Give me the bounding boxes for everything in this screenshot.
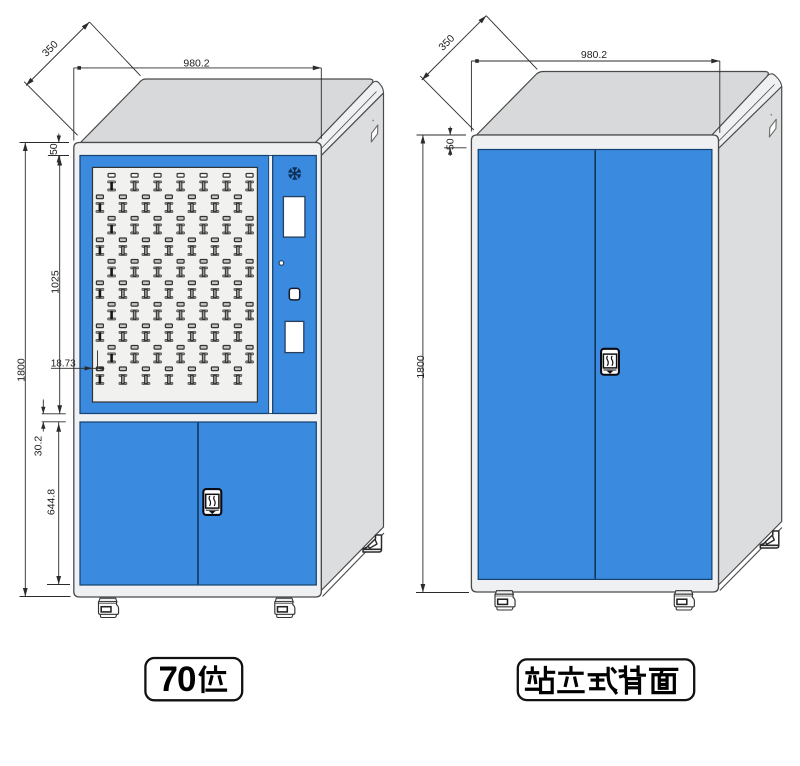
svg-text:70: 70 xyxy=(159,660,196,699)
svg-text:1800: 1800 xyxy=(16,358,28,382)
svg-text:18.73: 18.73 xyxy=(51,358,76,369)
svg-text:644.8: 644.8 xyxy=(46,489,58,515)
svg-text:50: 50 xyxy=(48,143,60,155)
svg-text:50: 50 xyxy=(444,138,456,150)
svg-text:1800: 1800 xyxy=(415,355,427,379)
svg-text:30.2: 30.2 xyxy=(32,436,44,457)
svg-text:980.2: 980.2 xyxy=(581,49,607,61)
svg-text:1025: 1025 xyxy=(50,270,62,294)
svg-text:980.2: 980.2 xyxy=(183,57,209,69)
